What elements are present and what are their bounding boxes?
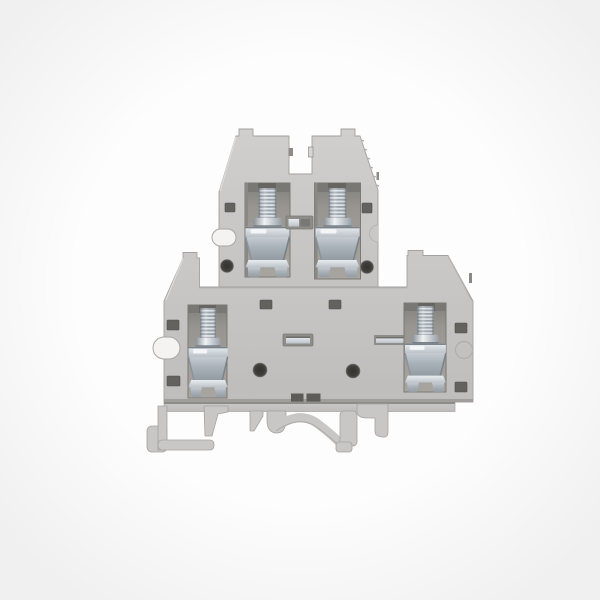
vent-slot xyxy=(260,300,272,309)
vent-slot xyxy=(362,203,372,213)
jumper-slot-lower xyxy=(283,334,313,346)
vent-slot xyxy=(329,300,341,309)
mounting-hole xyxy=(346,364,360,378)
foot-hook-right xyxy=(357,404,388,437)
mounting-hole xyxy=(253,363,267,377)
vent-slot xyxy=(455,323,467,333)
product-photo xyxy=(0,0,600,600)
notch-mark-right xyxy=(309,147,314,157)
edge-notch xyxy=(153,337,180,359)
edge-notch xyxy=(212,229,236,246)
terminal-block-illustration xyxy=(0,0,600,600)
din-rail-foot xyxy=(147,402,455,452)
jumper-slot-upper xyxy=(286,216,313,229)
vent-slot xyxy=(455,382,467,392)
mounting-hole xyxy=(361,261,374,274)
foot-tooth xyxy=(250,411,263,431)
vent-slot xyxy=(167,376,180,386)
upper-level xyxy=(212,129,379,300)
vent-slot xyxy=(167,320,179,330)
latch-slot xyxy=(291,394,304,403)
vent-slot xyxy=(225,203,235,212)
mounting-hole xyxy=(221,260,234,273)
foot-hook-left xyxy=(204,406,228,436)
latch-slot xyxy=(307,394,321,403)
notch-mark-left xyxy=(289,148,294,156)
